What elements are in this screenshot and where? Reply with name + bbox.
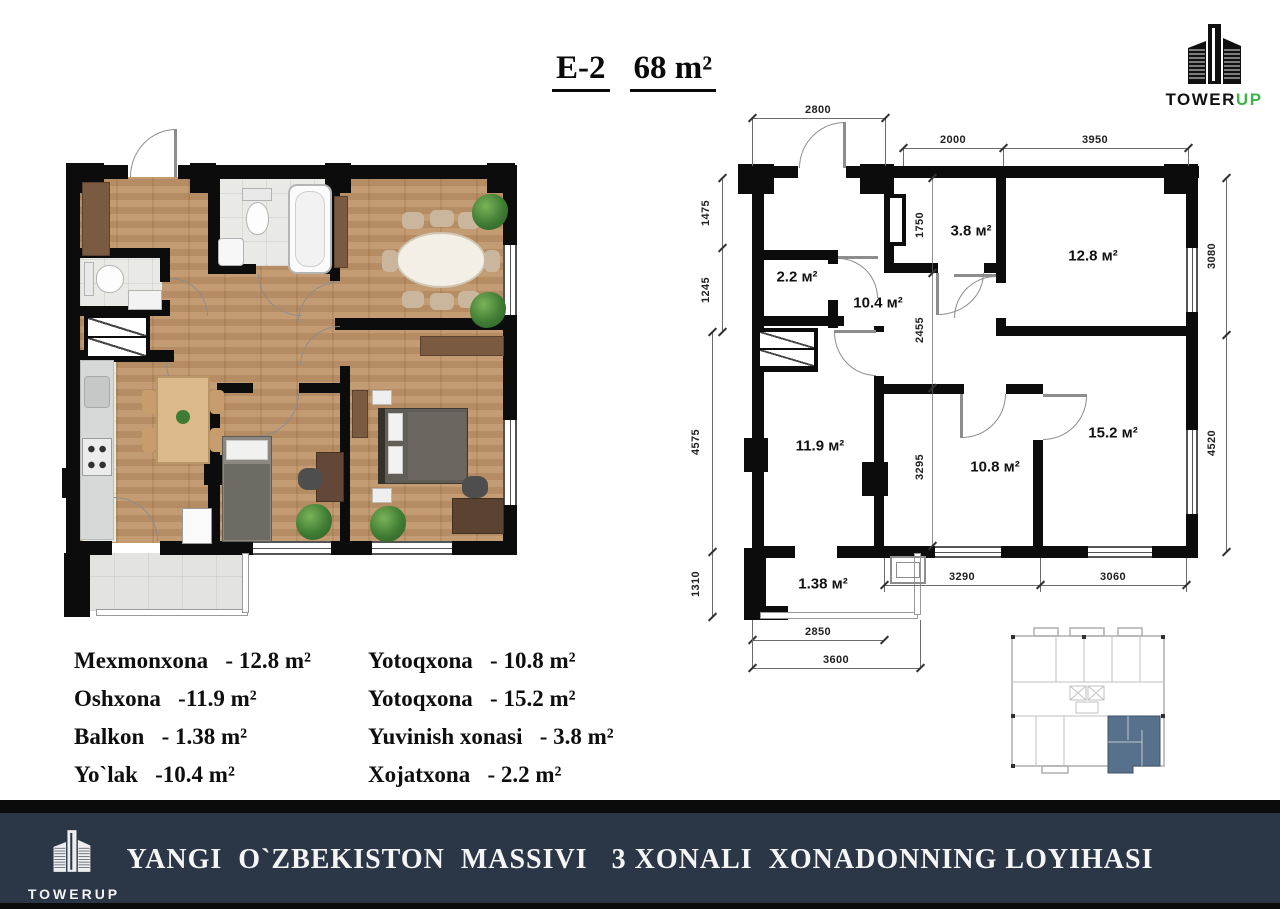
window [1088, 546, 1152, 558]
dim-ext [752, 620, 753, 668]
dining-table [396, 232, 486, 288]
door-arc [838, 258, 878, 298]
bed-headboard [378, 408, 385, 484]
dim-ext [1040, 558, 1041, 592]
stove [82, 438, 112, 476]
dim-label: 3290 [949, 571, 975, 583]
page-title: E-2 68 m² [552, 50, 716, 92]
balcony-step [896, 562, 920, 578]
wall [846, 166, 1199, 178]
door-leaf [954, 274, 996, 277]
door-arc [962, 394, 1006, 438]
washing-machine [182, 508, 212, 544]
wall [752, 316, 844, 326]
wall-pillar [62, 468, 82, 498]
legend-item: Yotoqxona - 15.2 m² [368, 686, 576, 712]
room-label-yolak: 10.4 м² [853, 295, 902, 312]
wall [752, 250, 838, 260]
dim-label: 3080 [1206, 243, 1218, 269]
kitchen-sink [84, 376, 110, 408]
wall [1152, 546, 1198, 558]
dim-label: 3060 [1100, 571, 1126, 583]
dim-line [884, 585, 1186, 586]
door-arc [799, 122, 845, 168]
dim-label: 1750 [914, 212, 926, 238]
flyer-page: E-2 68 m² TOWERUP [0, 0, 1280, 909]
dim-ext [752, 118, 753, 166]
room-label-balkon: 1.38 м² [798, 576, 847, 593]
towerup-logo: TOWERUP [1158, 22, 1270, 114]
wall [996, 318, 1006, 336]
toilet-tank [242, 188, 272, 201]
door-leaf [843, 122, 846, 168]
dim-line [903, 148, 1188, 149]
kitchen-chair [142, 428, 156, 452]
banner-bottom-strip [0, 903, 1280, 909]
dim-line [932, 178, 933, 546]
wall [1001, 546, 1088, 558]
wall [828, 250, 838, 264]
shelf-box [760, 350, 814, 366]
banner-title: YANGI O`ZBEKISTON MASSIVI 3 XONALI XONAD… [0, 844, 1280, 876]
wall [331, 541, 372, 555]
balcony-post [64, 553, 90, 617]
door-arc [834, 332, 876, 376]
dim-label: 4520 [1206, 430, 1218, 456]
dining-chair [402, 291, 424, 308]
bed-pillow [226, 440, 268, 460]
toilet-bowl [246, 202, 269, 235]
dining-chair [430, 293, 454, 310]
desk-chair [298, 468, 322, 490]
dim-ext [920, 620, 921, 668]
dining-chair [484, 250, 500, 272]
dim-tick [916, 663, 925, 672]
dim-ext [884, 558, 885, 592]
kitchen-chair [142, 390, 156, 414]
dim-line [712, 332, 713, 617]
dim-label: 1310 [690, 571, 702, 597]
table-decor [176, 410, 190, 424]
door-leaf [1043, 394, 1087, 397]
balcony-floor [80, 553, 246, 611]
window [503, 420, 517, 505]
dim-tick [718, 327, 727, 336]
nightstand [372, 488, 392, 503]
wall [160, 248, 170, 282]
plan-area: 68 m² [630, 50, 717, 92]
room-label-yotoqxona-2: 15.2 м² [1088, 425, 1137, 442]
plan-code: E-2 [552, 50, 610, 92]
dim-line [1226, 178, 1227, 552]
wall [452, 541, 515, 555]
door-leaf [936, 273, 939, 315]
dining-chair [430, 210, 454, 227]
dim-line [752, 118, 885, 119]
door-leaf [834, 330, 876, 333]
bed-blanket [224, 464, 270, 540]
window [253, 541, 331, 555]
dim-ext [1003, 148, 1004, 166]
wall [884, 384, 964, 394]
dim-ext [903, 148, 904, 166]
wordmark-tower: TOWER [1165, 90, 1235, 109]
wall [1033, 440, 1043, 558]
door-arc [1043, 396, 1087, 440]
room-label-yotoqxona-1: 10.8 м² [970, 459, 1019, 476]
toilet-bowl [96, 265, 124, 293]
dim-line [722, 178, 723, 332]
room-label-yuvinish: 3.8 м² [950, 223, 991, 240]
legend-item: Yotoqxona - 10.8 m² [368, 648, 576, 674]
door-leaf [174, 129, 177, 177]
nightstand [372, 390, 392, 405]
vent-shaft [886, 194, 906, 246]
legend-item: Yuvinish xonasi - 3.8 m² [368, 724, 614, 750]
window [1186, 248, 1198, 312]
balcony-glazing [96, 609, 248, 616]
wardrobe [420, 336, 504, 356]
wall [1006, 326, 1188, 336]
sideboard [334, 196, 348, 268]
dim-label: 2455 [914, 317, 926, 343]
wall [299, 383, 340, 393]
wall [996, 178, 1006, 283]
legend-item: Balkon - 1.38 m² [74, 724, 247, 750]
desk [452, 498, 504, 534]
wall [884, 263, 938, 273]
towerup-wordmark: TOWERUP [1158, 90, 1270, 110]
dim-line [752, 668, 920, 669]
legend-item: Xojatxona - 2.2 m² [368, 762, 561, 788]
sink [218, 238, 244, 266]
balcony-glazing [242, 553, 249, 613]
legend-item: Oshxona -11.9 m² [74, 686, 257, 712]
wall [1006, 384, 1043, 394]
dim-ext [1186, 558, 1187, 592]
banner-top-strip [0, 800, 1280, 813]
bed-blanket [408, 412, 466, 480]
dim-label: 3950 [1082, 134, 1108, 146]
room-label-oshxona: 11.9 м² [796, 438, 845, 455]
shelf-box [88, 338, 146, 356]
dining-chair [402, 212, 424, 229]
dim-label: 2850 [805, 626, 831, 638]
dim-tick [880, 635, 889, 644]
dim-label: 2000 [940, 134, 966, 146]
balcony-glazing [760, 612, 918, 619]
entry-closet [82, 182, 110, 256]
door-leaf [838, 256, 878, 259]
dim-tick [708, 612, 717, 621]
bed-pillow [388, 413, 403, 441]
highlighted-unit [1108, 716, 1160, 773]
dim-label: 3600 [823, 654, 849, 666]
towerup-building-icon [1180, 22, 1252, 86]
dining-chair [382, 250, 398, 272]
desk-chair [462, 476, 488, 498]
dim-line [752, 640, 884, 641]
banner-logo-wordmark: TOWERUP [18, 886, 130, 902]
dim-label: 1475 [700, 200, 712, 226]
door-leaf [960, 394, 963, 438]
dim-tick [1222, 547, 1231, 556]
kitchen-chair [210, 390, 224, 414]
dim-label: 4575 [690, 429, 702, 455]
wall-pillar [744, 438, 768, 472]
room-label-mexmonxona: 12.8 м² [1068, 248, 1117, 265]
toilet-tank [84, 262, 94, 296]
shelf-box [760, 332, 814, 348]
key-plan [1006, 620, 1172, 784]
bathtub-basin [295, 191, 325, 267]
legend-item: Mexmonxona - 12.8 m² [74, 648, 311, 674]
room-label-xojatxona: 2.2 м² [776, 269, 817, 286]
door-arc [130, 129, 176, 177]
dim-label: 3295 [914, 454, 926, 480]
window [372, 541, 452, 555]
wardrobe [352, 390, 368, 438]
legend-item: Yo`lak -10.4 m² [74, 762, 235, 788]
bed-pillow [388, 446, 403, 474]
dim-ext [885, 118, 886, 166]
window [1186, 430, 1198, 514]
window [935, 546, 1001, 558]
dim-label: 2800 [805, 104, 831, 116]
sink [128, 290, 162, 310]
wall-pillar [862, 462, 888, 496]
shelf-box [88, 318, 146, 336]
dim-label: 1245 [700, 277, 712, 303]
dim-ext [1188, 148, 1189, 166]
wordmark-up: UP [1236, 90, 1263, 109]
